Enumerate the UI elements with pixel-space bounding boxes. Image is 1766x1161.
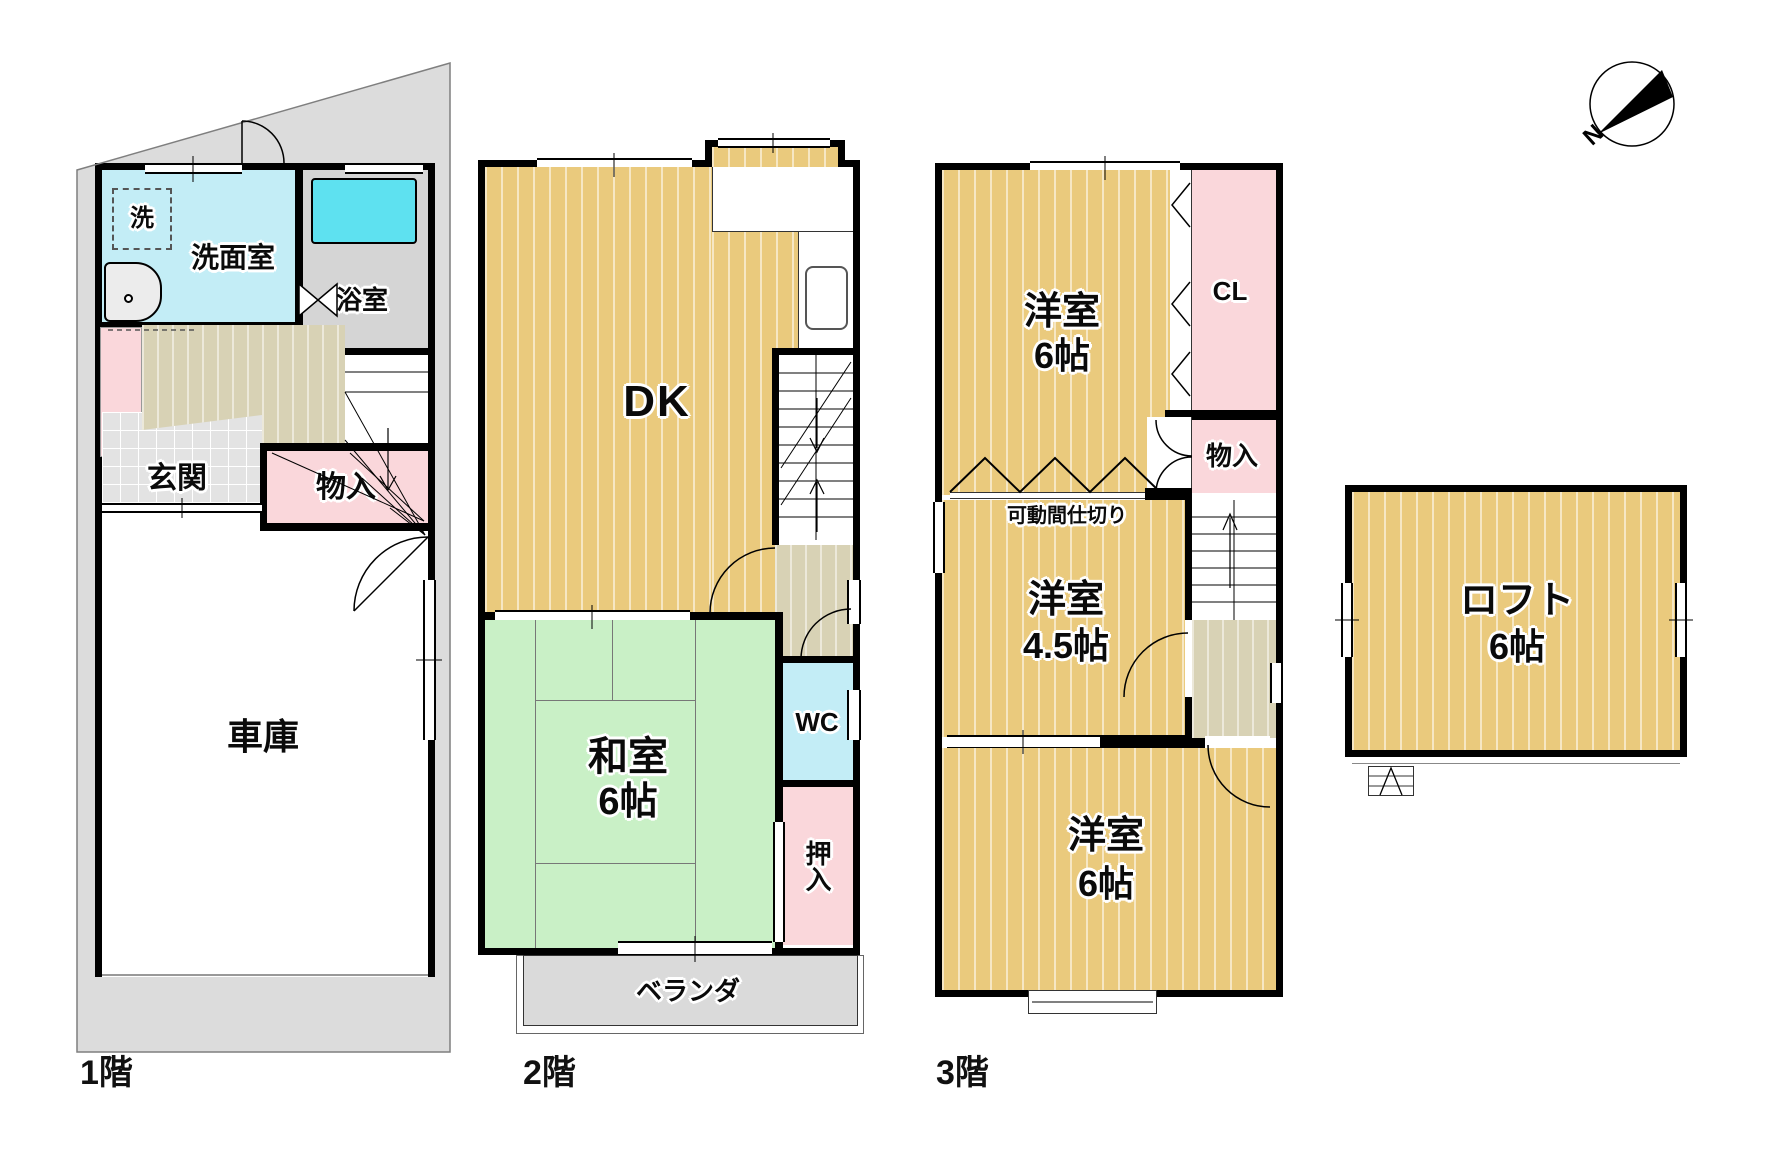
label-monoire-f3: 物入 bbox=[1206, 443, 1258, 469]
label-yoshitsu-bottom-size: 6帖 bbox=[1078, 866, 1134, 902]
wall-f3-hall-left-stub bbox=[1185, 697, 1192, 738]
f3-bottom-bay bbox=[1028, 990, 1157, 1014]
loft-ladder bbox=[1368, 766, 1414, 796]
floor1-tag: 1階 bbox=[80, 1056, 133, 1090]
window-loft-right bbox=[1675, 583, 1687, 657]
tatami-line-h1 bbox=[535, 700, 695, 701]
label-partition: 可動間仕切り bbox=[1007, 506, 1127, 526]
monoire-door-strip bbox=[1147, 417, 1192, 493]
label-oshiire: 押入 bbox=[804, 840, 830, 892]
kitchen-counter bbox=[712, 167, 853, 232]
wall-f2-stairs-top bbox=[772, 348, 853, 355]
tatami-line-v3 bbox=[612, 620, 613, 700]
label-entrance: 玄関 bbox=[147, 464, 207, 494]
label-yoshitsu-bottom: 洋室 bbox=[1068, 817, 1144, 855]
window-kitchen-bay bbox=[718, 138, 830, 148]
partition-open-wall bbox=[950, 492, 1160, 499]
wall-storage-left bbox=[260, 443, 267, 530]
wall-washitsu-corner bbox=[775, 942, 783, 950]
window-washitsu-balcony bbox=[618, 941, 772, 956]
label-yoshitsu-top: 洋室 bbox=[1024, 293, 1100, 331]
tatami-line-h2 bbox=[535, 863, 695, 864]
compass-icon: N bbox=[1578, 62, 1674, 151]
f2-hall bbox=[775, 545, 853, 663]
f3-stairs bbox=[1192, 500, 1276, 620]
window-f3-hall bbox=[1270, 663, 1283, 703]
svg-text:N: N bbox=[1578, 119, 1609, 151]
label-wc: WC bbox=[795, 709, 838, 735]
kitchen-sink bbox=[805, 266, 848, 330]
label-washitsu: 和室 bbox=[588, 737, 668, 777]
wall-f3-hall-bottom bbox=[1185, 738, 1205, 748]
floor2-tag: 2階 bbox=[523, 1056, 576, 1090]
label-washitsu-size: 6帖 bbox=[598, 783, 657, 821]
wall-f2-hall-wc bbox=[775, 656, 853, 663]
label-yoshitsu-mid-size: 4.5帖 bbox=[1023, 628, 1109, 664]
label-loft: ロフト bbox=[1460, 582, 1574, 620]
wall-f3-mid-bottom bbox=[1100, 735, 1185, 749]
label-washroom: 洗面室 bbox=[191, 244, 275, 272]
room-dk-mid bbox=[712, 348, 775, 615]
window-f2-hall bbox=[847, 580, 861, 624]
label-bathroom: 浴室 bbox=[336, 287, 388, 313]
window-f1-top-right bbox=[345, 163, 423, 174]
wall-f2-stairs-left bbox=[772, 355, 779, 545]
tatami-line-v1 bbox=[535, 620, 536, 948]
label-storage-f1: 物入 bbox=[316, 473, 376, 503]
f3-hall bbox=[1192, 620, 1276, 738]
washroom-sink bbox=[104, 262, 162, 322]
entrance-garage-sliding-door bbox=[102, 503, 262, 513]
floor3-tag: 3階 bbox=[936, 1056, 989, 1090]
bathtub bbox=[311, 178, 417, 244]
wall-wc-oshiire bbox=[775, 780, 853, 787]
label-yoshitsu-mid: 洋室 bbox=[1028, 581, 1104, 619]
cl-door-strip bbox=[1170, 170, 1192, 410]
label-cl: CL bbox=[1213, 278, 1248, 304]
sink-drain bbox=[124, 294, 133, 303]
window-yoshitsu-mid-bottom bbox=[947, 735, 1100, 749]
window-loft-left bbox=[1341, 583, 1353, 657]
window-f1-top-left bbox=[145, 163, 242, 174]
label-loft-size: 6帖 bbox=[1489, 629, 1545, 665]
fusuma-oshiire bbox=[773, 822, 785, 942]
f2-stairs bbox=[779, 355, 853, 540]
wall-f3-mid-right bbox=[1145, 488, 1192, 500]
wall-storage-top bbox=[260, 443, 428, 451]
floorplan-canvas: 洗 洗面室 浴室 玄関 物入 車庫 1階 DK 和室 6帖 WC bbox=[0, 0, 1766, 1161]
label-yoshitsu-top-size: 6帖 bbox=[1034, 338, 1090, 374]
label-dk: DK bbox=[623, 380, 691, 424]
window-f3-left bbox=[933, 502, 945, 573]
wall-washitsu-right bbox=[775, 612, 783, 822]
tatami-line-v2 bbox=[695, 620, 696, 948]
loft-eave-line bbox=[1352, 763, 1680, 764]
label-garage: 車庫 bbox=[227, 719, 299, 755]
wall-washroom-bathroom bbox=[295, 170, 303, 329]
wall-storage-bottom bbox=[260, 523, 428, 531]
window-f2-wc bbox=[847, 690, 861, 740]
label-washer: 洗 bbox=[130, 207, 154, 231]
label-veranda: ベランダ bbox=[636, 978, 740, 1004]
f3-hall-door-gap bbox=[1205, 736, 1270, 748]
window-garage-right bbox=[423, 580, 436, 740]
wall-f3-stairs-left bbox=[1185, 500, 1192, 620]
